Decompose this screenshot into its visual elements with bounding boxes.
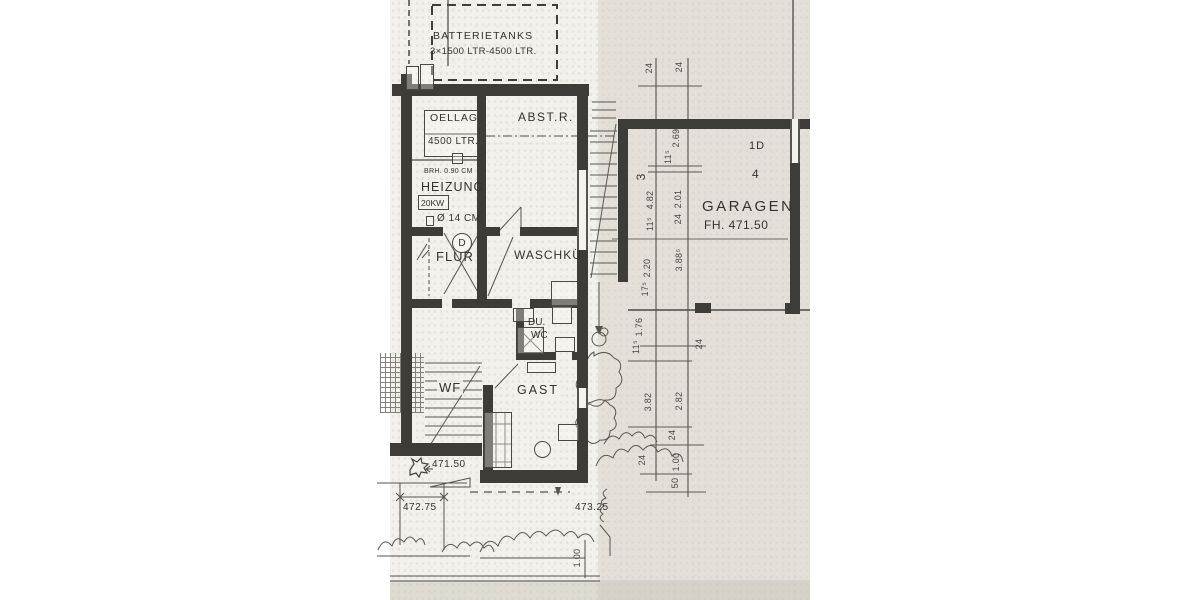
wall-duwc-bottom-b	[572, 352, 588, 360]
washbasin	[552, 306, 572, 324]
room-waschkueche: WASCHKÜ	[514, 248, 582, 262]
wall-right-middle	[577, 250, 588, 388]
wall-flur-waschku	[477, 236, 487, 307]
radiator-block	[403, 255, 412, 280]
room-garagen: GARAGEN	[702, 198, 795, 215]
round-table	[534, 441, 551, 458]
tank-gauge-symbol	[452, 153, 463, 164]
heizung-parapet-note: BRH. 0.90 CM	[424, 168, 473, 175]
garage-floor-level: FH. 471.50	[704, 218, 768, 232]
valve-symbol	[426, 216, 434, 226]
room-wc: WC	[531, 330, 548, 341]
window-right-upper	[577, 170, 588, 250]
wall-h299-a	[402, 299, 442, 308]
level-left: 472.75	[403, 502, 437, 513]
battery-tanks-subtitle: 3×1500 LTR-4500 LTR.	[430, 46, 537, 57]
garage-unit: 1D	[749, 140, 765, 152]
scan-shade-right	[598, 0, 810, 600]
dim-label: 24	[637, 438, 647, 482]
heizung-pipe-note: Ø 14 CM	[437, 213, 481, 224]
wall-garage-top	[618, 119, 810, 129]
window-gast	[577, 388, 588, 408]
room-wf: WF	[437, 380, 463, 395]
wall-h227-a	[412, 227, 443, 236]
room-flur: FLUR	[436, 249, 474, 264]
wall-h227-c	[520, 227, 578, 236]
room-oellag: OELLAG.	[430, 112, 482, 124]
garage-pillar	[695, 303, 711, 313]
dim-label: 24	[673, 197, 683, 241]
room-gast: GAST	[515, 383, 561, 397]
wall-bottom-right	[480, 470, 588, 483]
garage-number: 4	[752, 167, 759, 181]
wc-fixture	[555, 337, 575, 352]
wall-garage-right	[790, 163, 800, 310]
scan-shade-bottom	[390, 580, 810, 600]
floorplan-scan: D document.querySelector('.dcirc').style…	[0, 0, 1200, 600]
garage-window-strip	[790, 119, 800, 163]
wall-h299-b	[452, 299, 512, 308]
dim-label: 11⁵	[663, 135, 673, 179]
room-abstellraum: ABST.R.	[518, 110, 574, 124]
room-heizung: HEIZUNG	[421, 180, 484, 194]
wall-bottom-left	[390, 443, 482, 456]
wall-h227-b	[486, 227, 500, 236]
wall-garage-left	[618, 129, 628, 282]
window-symbol	[420, 64, 434, 90]
dim-label: 11⁵	[631, 325, 641, 369]
bed-outline	[484, 412, 512, 468]
dim-label: 24	[674, 45, 684, 89]
room-dusche: DU.	[528, 317, 545, 328]
dim-label: 24	[644, 46, 654, 90]
dim-label: 11⁵	[645, 202, 655, 246]
dim-label: 24	[694, 322, 704, 366]
dim-label: 3.88⁵	[674, 238, 684, 282]
garage-pillar	[785, 303, 800, 314]
oellag-capacity: 4500 LTR.	[428, 136, 478, 147]
wall-right-upper	[577, 84, 588, 170]
dim-label: 50	[670, 461, 680, 505]
door-sill	[527, 362, 556, 373]
washing-machine	[551, 281, 578, 306]
heizung-power: 20KW	[421, 198, 444, 208]
boiler-block	[404, 214, 412, 228]
dim-label: 3.82	[643, 380, 653, 424]
level-right: 473.25	[575, 502, 609, 513]
window-symbol	[406, 66, 419, 90]
battery-tanks-title: BATTERIETANKS	[433, 30, 533, 42]
garden-dimension: 1.00	[572, 536, 582, 580]
level-terrace: 471.50	[432, 459, 466, 470]
cabinet	[558, 424, 579, 441]
